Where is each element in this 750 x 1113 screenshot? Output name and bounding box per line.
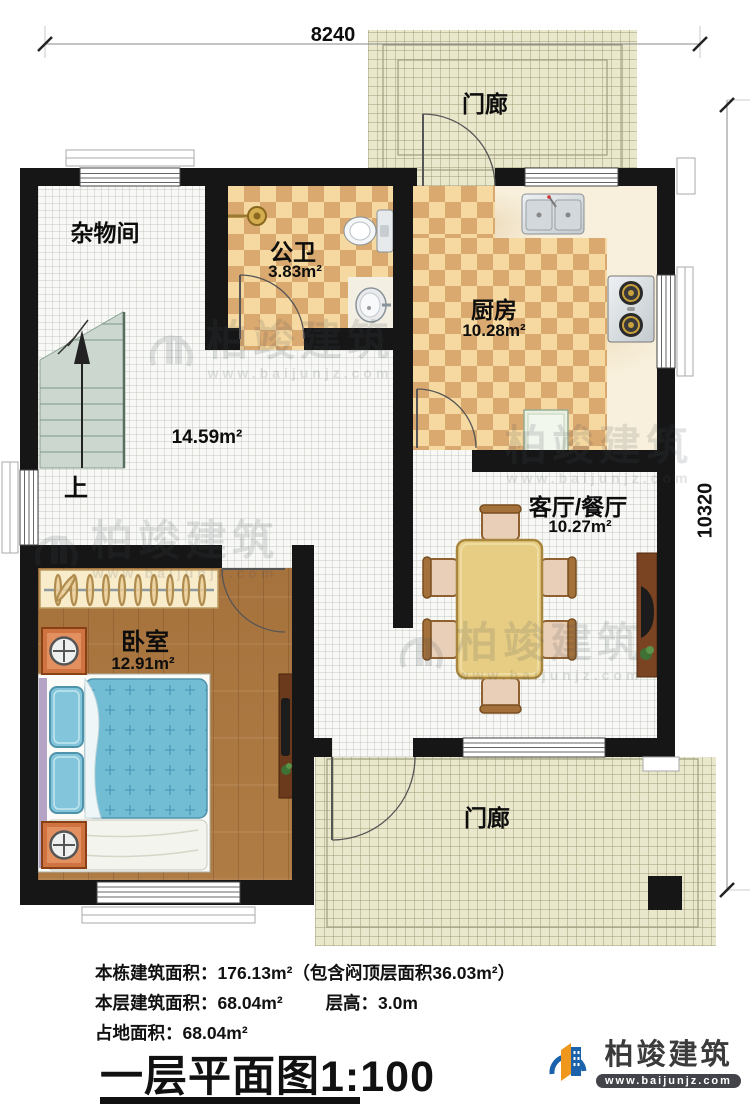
room-area-kitchen: 10.28m² (462, 322, 525, 341)
room-label-porch-bottom: 门廊 (464, 806, 510, 831)
info-floor-height: 层高：3.0m (326, 993, 418, 1013)
porch-bottom-steps (327, 759, 698, 927)
room-label-storage: 杂物间 (71, 221, 140, 246)
nightstand-top (42, 628, 86, 674)
brand-name: 柏竣建筑 (604, 1040, 732, 1072)
stove (608, 276, 654, 342)
floor-plan: 柏竣建筑 www.baijunjz.com 柏竣建筑 www.baijunjz.… (0, 0, 750, 1113)
shower-head (228, 207, 266, 225)
bedroom-tv-cabinet (279, 674, 293, 798)
info-total-area: 本栋建筑面积：176.13m²（包含闷顶层面积36.03m²） (95, 960, 515, 985)
nightstand-bottom (42, 822, 86, 868)
dining-table (457, 540, 542, 678)
door-bedroom (222, 569, 285, 632)
room-label-kitchen: 厨房 (471, 298, 517, 323)
door-porch-kitchen (423, 114, 495, 186)
brand-logo-icon (547, 1038, 589, 1090)
dim-top-label: 8240 (311, 24, 356, 46)
title-underline (100, 1097, 360, 1104)
bathroom-sink (356, 288, 391, 322)
living-tv-cabinet (637, 553, 657, 677)
brand-url: www.baijunjz.com (596, 1074, 741, 1088)
plan-title: 一层平面图1:100 (100, 1042, 435, 1104)
info-floor-area: 本层建筑面积：68.04m² (95, 993, 283, 1013)
door-bathroom (240, 275, 304, 339)
room-label-bedroom: 卧室 (121, 630, 169, 656)
room-area-bedroom: 12.91m² (111, 655, 174, 674)
room-area-living: 10.27m² (548, 518, 611, 537)
fridge (524, 410, 568, 457)
dim-right-label: 10320 (684, 468, 728, 552)
toilet (344, 210, 393, 252)
door-kitchen (417, 389, 476, 448)
kitchen-sink (522, 194, 584, 234)
room-area-hall: 14.59m² (172, 428, 243, 449)
plan-graphics (0, 0, 750, 1113)
door-entry (332, 757, 415, 840)
brand-logo: 柏竣建筑 www.baijunjz.com (547, 1038, 741, 1090)
info-floor-line: 本层建筑面积：68.04m² 层高：3.0m (95, 990, 418, 1015)
room-label-porch-top: 门廊 (462, 92, 508, 117)
room-area-bathroom: 3.83m² (268, 263, 322, 282)
staircase (40, 312, 124, 468)
stairs-up-label: 上 (64, 476, 88, 502)
porch-column (648, 876, 682, 910)
wardrobe (40, 570, 218, 608)
